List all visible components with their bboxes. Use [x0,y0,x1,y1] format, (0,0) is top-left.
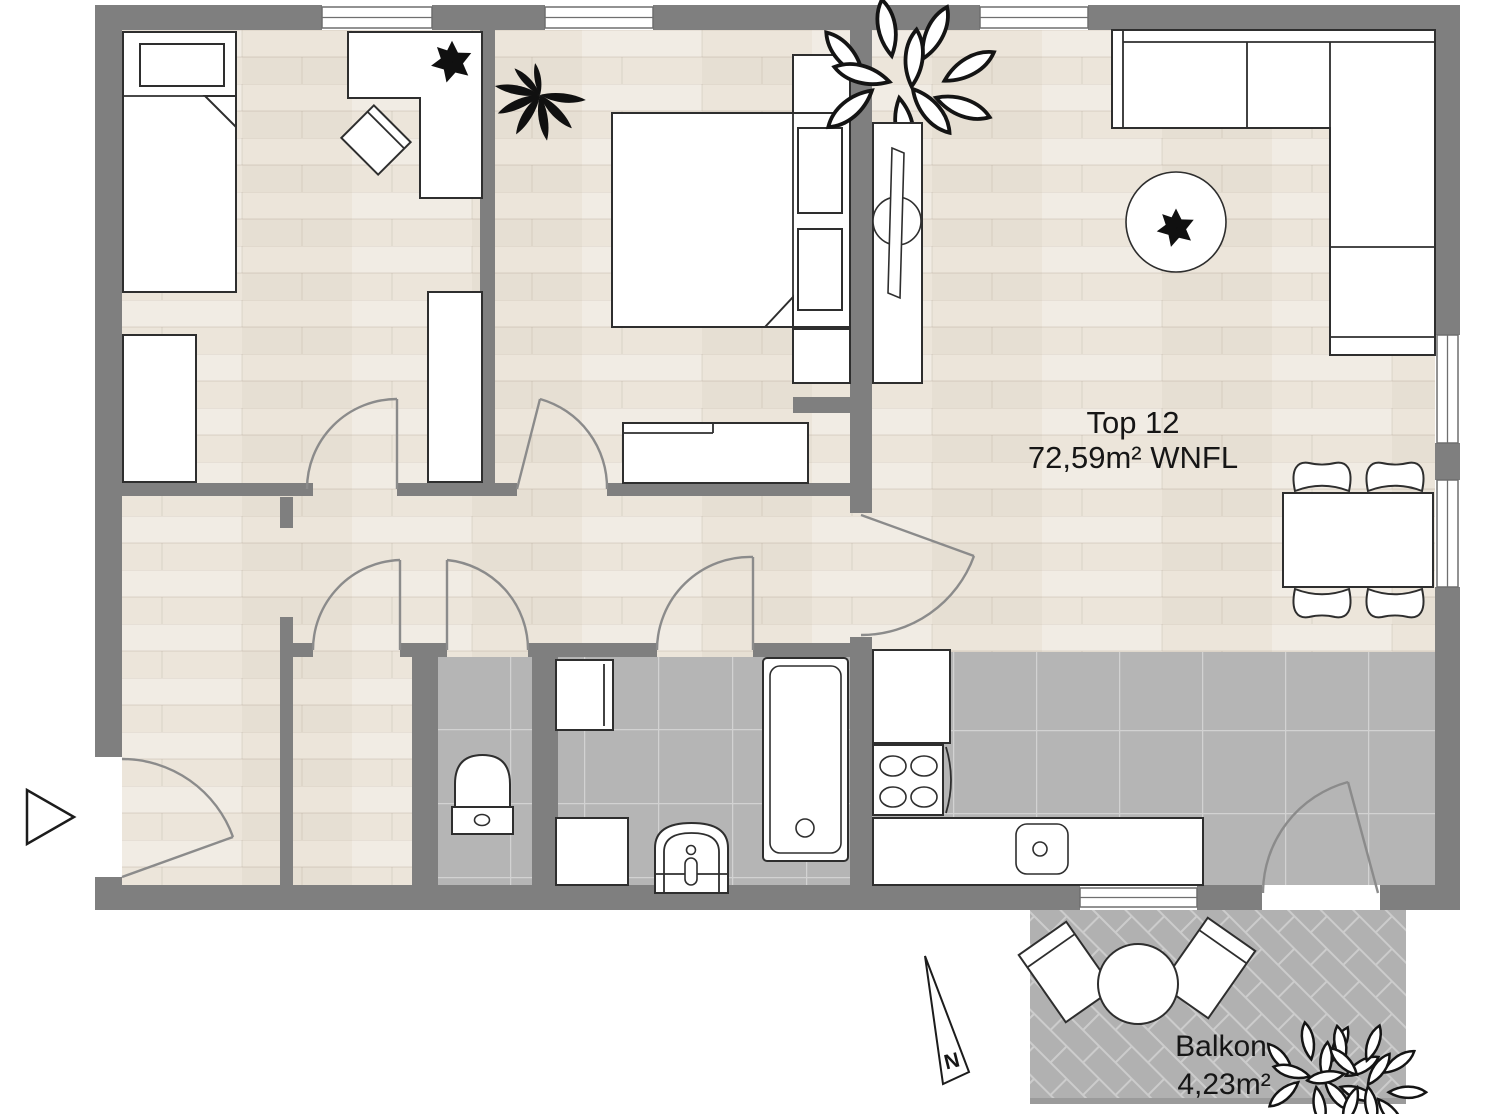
balcony-name: Balkon [1175,1030,1267,1063]
wardrobe [123,335,196,482]
sink [655,823,728,893]
tv-board [873,123,922,383]
unit-area: 72,59m² WNFL [1028,440,1238,475]
washing-machine [556,660,613,730]
stove [873,745,951,815]
balcony-area: 4,23m² [1177,1068,1270,1101]
window [1437,335,1458,443]
nightstand [793,329,850,383]
single-bed [123,32,236,292]
unit-name: Top 12 [1086,405,1179,440]
dining-table [1283,493,1433,587]
north-arrow-icon: N [925,956,969,1084]
entrance-arrow-icon [27,790,74,844]
bathtub [763,658,848,861]
entrance-opening [95,757,122,877]
window [545,7,653,28]
kitchen-counter [873,818,1203,885]
balcony-table [1098,944,1178,1024]
fridge [873,650,950,743]
round-rug [1126,172,1226,272]
double-bed [612,113,850,327]
tall-cabinet [428,292,482,482]
toilet [452,755,513,834]
dresser [623,423,808,483]
window [980,7,1088,28]
floor-plan-page: Top 12 72,59m² WNFL [0,0,1500,1114]
balcony-door-opening [1262,886,1380,910]
floor-plan: Top 12 72,59m² WNFL [0,0,1500,1114]
window [322,7,432,28]
bath-cabinet [556,818,628,885]
window [1080,888,1197,907]
window [1437,480,1458,587]
